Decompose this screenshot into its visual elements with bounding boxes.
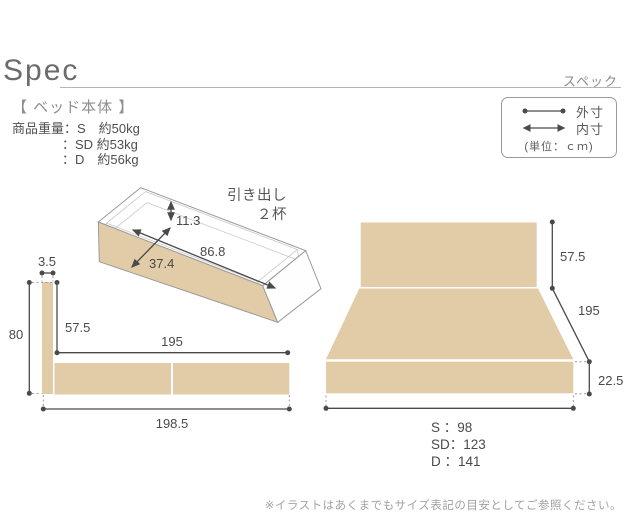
legend-inner-label: 内寸: [576, 119, 604, 138]
side-base-right: [173, 363, 289, 395]
front-measure-width: [324, 406, 576, 411]
front-width-single: S ：98: [431, 420, 472, 435]
legend-inner-row: 内寸: [502, 120, 616, 137]
weight-line-sd: ：SD 約53kg: [12, 137, 140, 153]
side-measure-above-base: 57.5: [55, 280, 91, 355]
front-headboard-height-value: 57.5: [560, 249, 585, 264]
front-measure-base-height: 22.5: [587, 362, 624, 397]
disclaimer-footnote: ※イラストはあくまでもサイズ表記の目安としてご参照ください。: [265, 497, 622, 513]
front-measure-headboard-height: 57.5: [550, 220, 586, 291]
bed-side-view-diagram: 3.5 80 57.5 195 198.5: [5, 248, 305, 438]
side-headboard-thickness-value: 3.5: [38, 254, 56, 269]
legend-outer-row: 外寸: [502, 103, 616, 120]
section-label: 【 ベッド本体 】: [12, 96, 134, 117]
side-measure-frame-length: 195: [57, 334, 290, 355]
front-bed-length-value: 195: [578, 303, 600, 318]
spec-page: { "header": { "title": "Spec", "subtitle…: [0, 0, 625, 520]
drawer-inner-height-value: 11.3: [176, 213, 200, 228]
weight-line-s: 商品重量：S 約50kg: [12, 121, 140, 137]
outer-dimension-line-icon: [521, 106, 567, 116]
bed-front-view-diagram: 57.5 195 22.5 S ：98 SD：123 D ：141: [318, 215, 625, 475]
drawer-count-label: ２杯: [257, 206, 287, 223]
side-total-height-value: 80: [9, 327, 23, 342]
front-width-semidouble: SD：123: [431, 437, 486, 452]
side-measure-total-length: 198.5: [41, 407, 292, 432]
drawer-label: 引き出し: [227, 187, 287, 204]
weight-line-d: ：D 約56kg: [12, 152, 140, 168]
inner-dimension-arrow-icon: [521, 123, 567, 133]
dimension-legend-box: 外寸 内寸 (単位：ｃｍ): [501, 97, 617, 158]
side-base-left: [55, 363, 172, 395]
front-headboard: [361, 223, 537, 288]
side-above-base-value: 57.5: [65, 320, 90, 335]
side-headboard: [42, 282, 53, 394]
side-measure-total-height: 80: [9, 280, 32, 396]
side-total-length-value: 198.5: [156, 416, 189, 431]
legend-unit: (単位：ｃｍ): [502, 138, 616, 154]
product-weight-block: 商品重量：S 約50kg ：SD 約53kg ：D 約56kg: [12, 121, 140, 168]
header-divider: [60, 87, 621, 88]
front-mattress-platform: [326, 289, 573, 360]
front-width-double: D ：141: [431, 454, 481, 469]
side-frame-length-value: 195: [161, 334, 183, 349]
front-base-height-value: 22.5: [598, 373, 623, 388]
side-measure-headboard-thickness: 3.5: [38, 254, 56, 276]
front-base: [326, 362, 573, 394]
page-title: Spec: [3, 54, 79, 88]
